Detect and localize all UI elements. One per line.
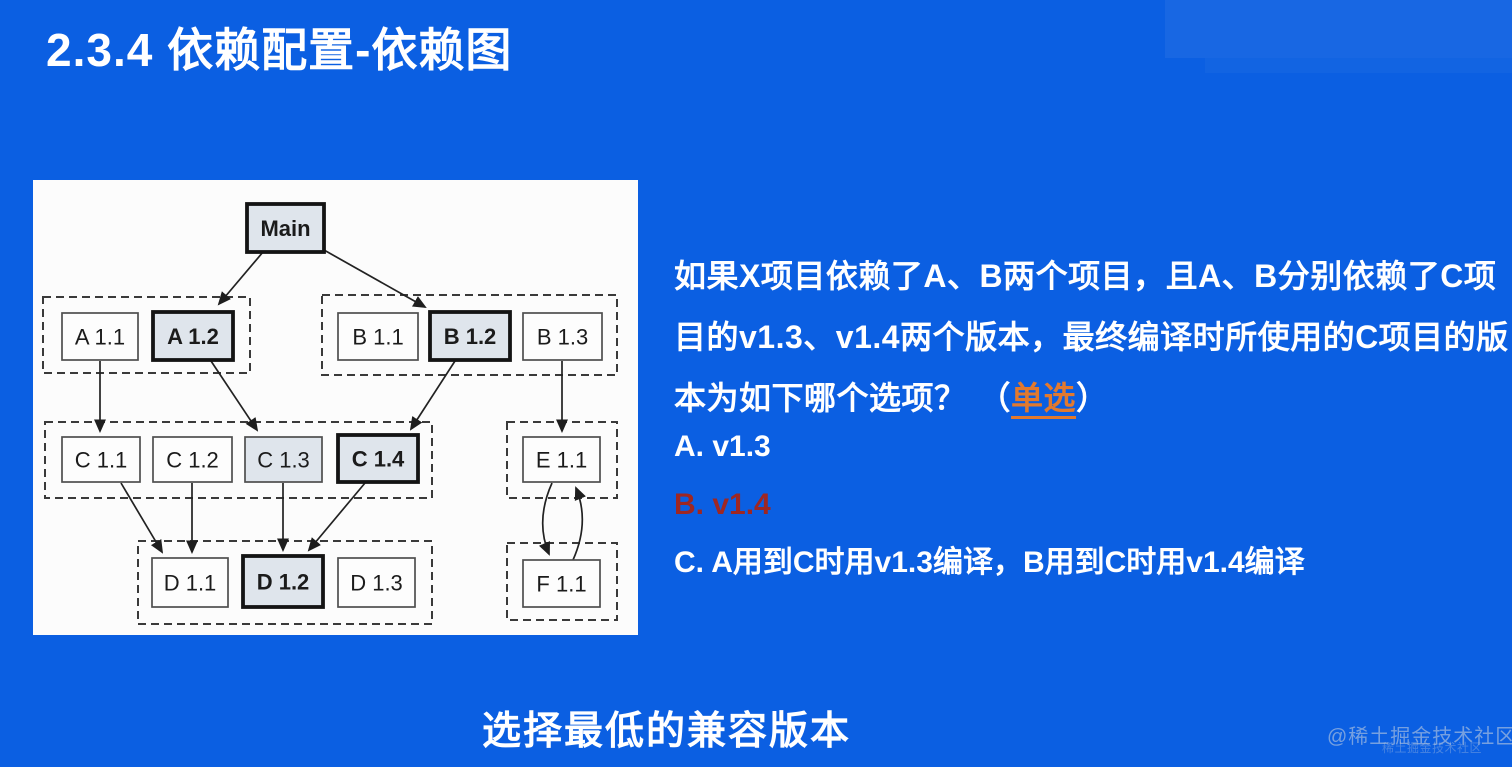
node-a11: A 1.1 [62,313,138,360]
question-line-3-text: 本为如下哪个选项？ [674,380,967,416]
node-label-c12: C 1.2 [166,448,219,473]
node-label-f11: F 1.1 [536,572,586,597]
question-line-2: 目的v1.3、v1.4两个版本，最终编译时所使用的C项目的版 [674,307,1512,368]
option-a: A. v1.3 [674,418,1512,476]
node-a12: A 1.2 [153,312,233,360]
node-d11: D 1.1 [152,558,228,607]
node-label-a12: A 1.2 [167,324,219,349]
node-f11: F 1.1 [523,560,600,607]
node-label-b11: B 1.1 [352,325,403,350]
node-label-e11: E 1.1 [536,448,587,473]
node-main: Main [247,204,324,252]
node-e11: E 1.1 [523,437,600,482]
node-label-c11: C 1.1 [75,448,128,473]
node-label-main: Main [260,216,310,241]
node-c11: C 1.1 [62,437,140,482]
watermark-echo: 稀土掘金技术社区 [1382,739,1482,756]
node-c13: C 1.3 [245,437,322,482]
node-label-a11: A 1.1 [75,325,125,350]
dependency-arrow [309,483,365,550]
node-label-d11: D 1.1 [164,571,217,596]
dependency-arrow [211,361,257,430]
page-title: 2.3.4 依赖配置-依赖图 [46,14,512,80]
dependency-diagram-panel: MainA 1.1A 1.2B 1.1B 1.2B 1.3C 1.1C 1.2C… [33,180,638,635]
dependency-graph: MainA 1.1A 1.2B 1.1B 1.2B 1.3C 1.1C 1.2C… [33,180,638,635]
node-d13: D 1.3 [338,558,415,607]
answer-caption: 选择最低的兼容版本 [482,700,851,756]
node-label-d12: D 1.2 [257,570,310,595]
node-label-d13: D 1.3 [350,571,403,596]
node-d12: D 1.2 [243,556,323,607]
node-b13: B 1.3 [523,313,602,360]
question-block: 如果X项目依赖了A、B两个项目，且A、B分别依赖了C项 目的v1.3、v1.4两… [674,246,1512,429]
tag-open-paren: （ [979,380,1012,416]
blurred-watermark-patch [1165,0,1512,58]
option-c: C. A用到C时用v1.3编译，B用到C时用v1.4编译 [674,534,1512,592]
options-list: A. v1.3 B. v1.4 C. A用到C时用v1.3编译，B用到C时用v1… [674,418,1512,592]
node-c14: C 1.4 [338,435,418,482]
node-label-c13: C 1.3 [257,448,310,473]
node-label-b12: B 1.2 [444,324,497,349]
single-choice-tag: 单选 [1011,380,1076,416]
tag-close-paren: ） [1076,380,1109,416]
node-b12: B 1.2 [430,312,510,360]
node-label-c14: C 1.4 [352,447,405,472]
question-line-1: 如果X项目依赖了A、B两个项目，且A、B分别依赖了C项 [674,246,1512,307]
blurred-watermark-patch-lower [1205,58,1512,73]
slide: 2.3.4 依赖配置-依赖图 MainA 1.1A 1.2B 1.1B 1.2B… [0,0,1512,767]
node-b11: B 1.1 [338,313,418,360]
node-c12: C 1.2 [153,437,232,482]
option-b-answer: B. v1.4 [674,476,1512,534]
node-label-b13: B 1.3 [537,325,588,350]
dependency-arrow [324,250,425,307]
dependency-arrow [411,361,455,429]
